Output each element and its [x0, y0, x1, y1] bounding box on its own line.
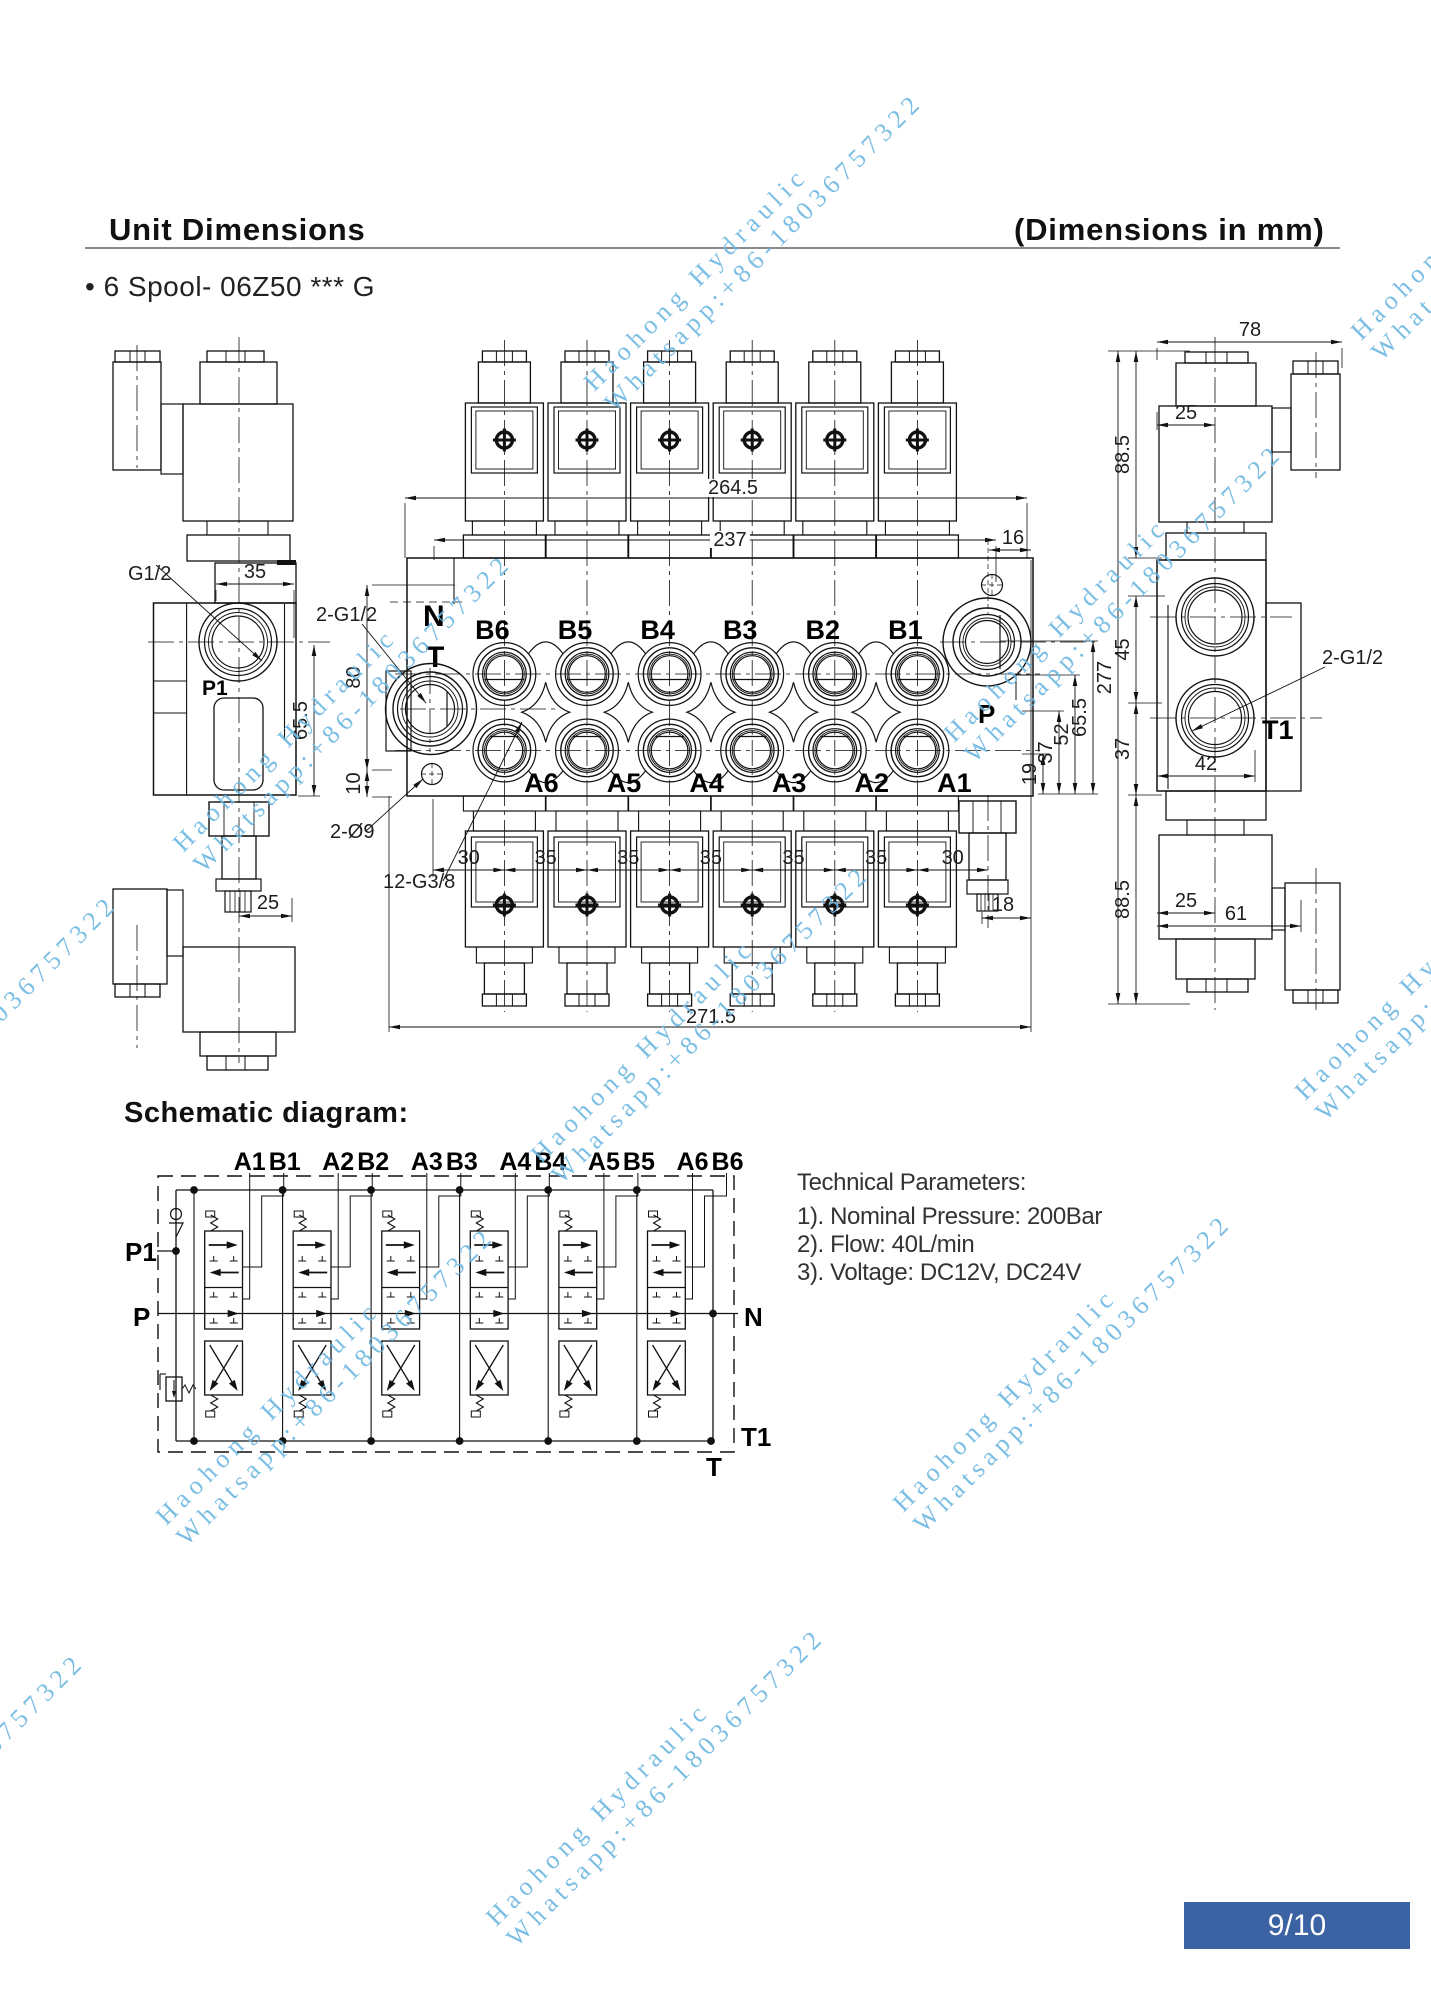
- svg-text:35: 35: [865, 847, 887, 869]
- svg-text:B4: B4: [640, 615, 675, 645]
- svg-text:35: 35: [782, 847, 804, 869]
- svg-text:35: 35: [617, 847, 639, 869]
- svg-text:A1: A1: [234, 1148, 266, 1176]
- svg-text:A6: A6: [524, 768, 559, 798]
- svg-text:T1: T1: [741, 1422, 771, 1452]
- svg-text:88.5: 88.5: [1112, 880, 1134, 919]
- svg-text:78: 78: [1239, 319, 1261, 341]
- svg-text:18: 18: [992, 894, 1014, 916]
- svg-text:A1: A1: [937, 768, 972, 798]
- svg-text:277: 277: [1094, 661, 1116, 694]
- svg-text:2-G1/2: 2-G1/2: [1322, 647, 1383, 669]
- svg-text:T: T: [706, 1452, 722, 1482]
- svg-text:B2: B2: [806, 615, 841, 645]
- svg-text:65.5: 65.5: [1069, 698, 1091, 737]
- svg-text:G1/2: G1/2: [128, 563, 171, 585]
- svg-text:B2: B2: [357, 1148, 389, 1176]
- svg-text:30: 30: [942, 847, 964, 869]
- svg-text:35: 35: [535, 847, 557, 869]
- svg-text:B6: B6: [712, 1148, 744, 1176]
- svg-text:88.5: 88.5: [1112, 435, 1134, 474]
- svg-text:42: 42: [1195, 753, 1217, 775]
- svg-text:237: 237: [713, 529, 746, 551]
- svg-text:T1: T1: [1262, 715, 1294, 745]
- svg-text:30: 30: [458, 847, 480, 869]
- svg-text:25: 25: [257, 892, 279, 914]
- svg-text:A3: A3: [772, 768, 807, 798]
- svg-text:N: N: [744, 1302, 763, 1332]
- svg-text:264.5: 264.5: [708, 477, 758, 499]
- svg-text:A4: A4: [499, 1148, 531, 1176]
- svg-text:10: 10: [343, 772, 365, 794]
- svg-text:2-G1/2: 2-G1/2: [316, 604, 377, 626]
- svg-text:25: 25: [1175, 890, 1197, 912]
- svg-text:25: 25: [1175, 402, 1197, 424]
- svg-text:P1: P1: [125, 1237, 157, 1267]
- svg-text:A3: A3: [411, 1148, 443, 1176]
- svg-text:P: P: [133, 1302, 150, 1332]
- svg-text:12-G3/8: 12-G3/8: [383, 871, 455, 893]
- svg-text:A2: A2: [855, 768, 890, 798]
- svg-text:P1: P1: [202, 677, 228, 700]
- svg-text:35: 35: [244, 561, 266, 583]
- svg-text:45: 45: [1112, 638, 1134, 660]
- svg-text:A2: A2: [322, 1148, 354, 1176]
- svg-text:B3: B3: [446, 1148, 478, 1176]
- svg-text:16: 16: [1002, 527, 1024, 549]
- svg-text:A6: A6: [677, 1148, 709, 1176]
- svg-text:B3: B3: [723, 615, 758, 645]
- svg-text:B5: B5: [623, 1148, 655, 1176]
- svg-text:B1: B1: [888, 615, 923, 645]
- svg-text:B5: B5: [558, 615, 593, 645]
- svg-text:B6: B6: [475, 615, 510, 645]
- svg-text:2-Ø9: 2-Ø9: [330, 821, 374, 843]
- svg-text:37: 37: [1112, 738, 1134, 760]
- svg-text:A5: A5: [607, 768, 642, 798]
- svg-text:B1: B1: [269, 1148, 301, 1176]
- svg-text:19: 19: [1019, 763, 1041, 785]
- svg-text:61: 61: [1225, 903, 1247, 925]
- svg-text:A4: A4: [689, 768, 724, 798]
- svg-text:35: 35: [700, 847, 722, 869]
